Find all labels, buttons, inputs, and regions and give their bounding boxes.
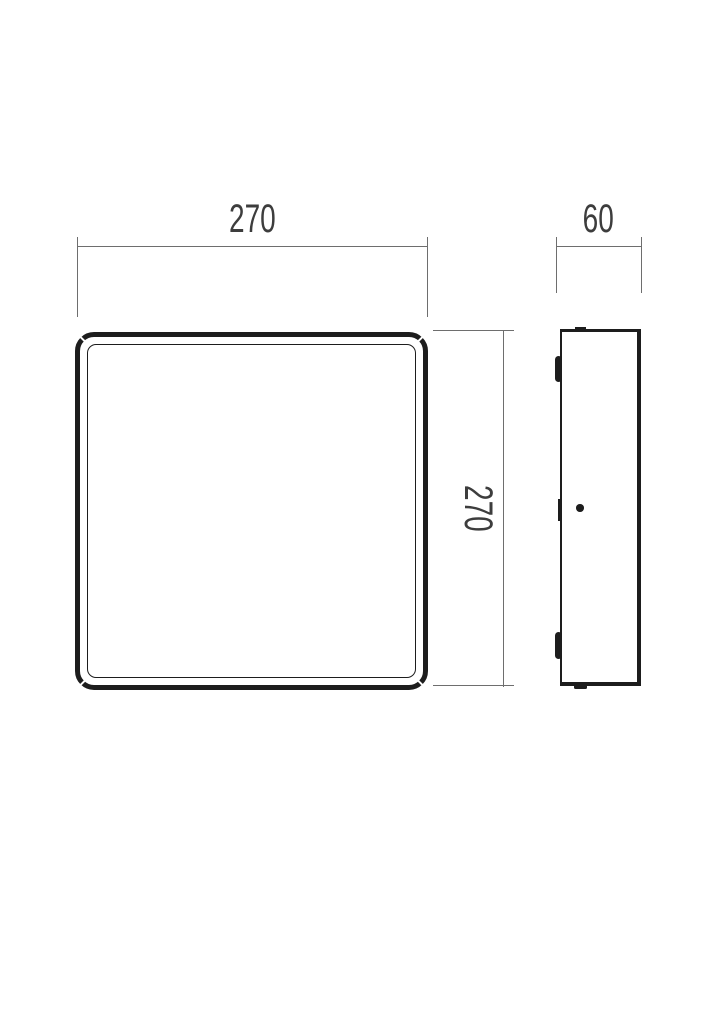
front-width-extension-line-left bbox=[77, 237, 78, 317]
front-height-dimension-line bbox=[503, 330, 504, 687]
side-view-mounting-clip-bottom bbox=[555, 632, 562, 659]
front-height-extension-line-bottom bbox=[433, 685, 514, 686]
front-height-extension-line-top bbox=[433, 330, 514, 331]
side-view-left-edge-bump bbox=[558, 499, 562, 521]
side-view-top-edge-mark bbox=[575, 327, 586, 331]
front-width-dimension-line bbox=[77, 246, 428, 247]
front-height-dimension-label: 270 bbox=[458, 448, 498, 568]
side-view-bottom-notch bbox=[574, 685, 587, 689]
side-depth-dimension-label: 60 bbox=[556, 198, 641, 240]
side-depth-dimension-value: 60 bbox=[583, 199, 614, 239]
front-view-inner-line bbox=[87, 344, 416, 678]
side-view-screw-dot bbox=[576, 504, 584, 512]
front-height-dimension-value: 270 bbox=[458, 485, 498, 532]
front-view-bottom-notch bbox=[241, 687, 255, 690]
technical-drawing: 270 60 270 bbox=[0, 0, 717, 1024]
side-view-outline bbox=[560, 329, 641, 686]
front-width-dimension-value: 270 bbox=[229, 199, 276, 239]
side-depth-dimension-line bbox=[556, 246, 642, 247]
front-width-dimension-label: 270 bbox=[77, 198, 427, 240]
side-view-mounting-clip-top bbox=[555, 356, 562, 382]
front-width-extension-line-right bbox=[427, 237, 428, 317]
